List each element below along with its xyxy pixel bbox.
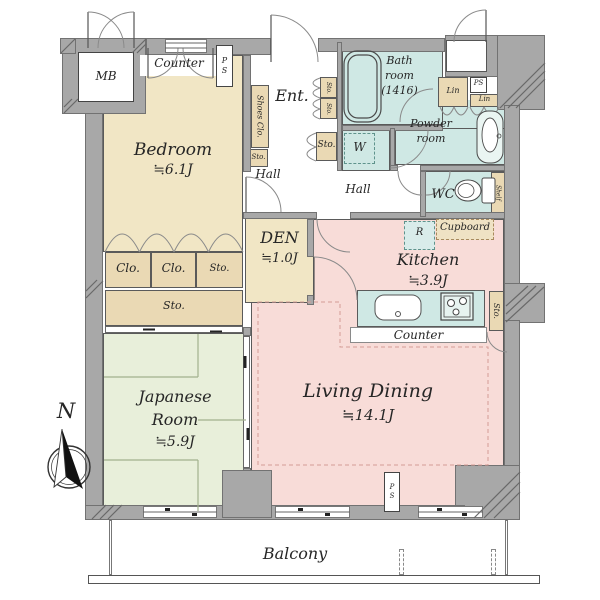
wall: [243, 212, 317, 219]
shoes-closet-label: Shoes Clo.: [251, 86, 269, 146]
lin-left-label: Lin: [438, 87, 468, 95]
clo-left-label: Clo.: [105, 262, 151, 275]
bath-label-2: room: [362, 70, 437, 82]
balcony-post: [399, 549, 404, 575]
den-label: DEN: [245, 230, 314, 247]
sto-ent-lower-label: Sto.: [320, 100, 337, 118]
kitchen-counter-area: [357, 290, 485, 327]
entry-door-opening: [446, 40, 487, 72]
bedroom-size: ≒6.1J: [103, 163, 243, 178]
entrance-label: Ent.: [266, 88, 318, 105]
living-dining-label: Living Dining: [258, 382, 478, 402]
japanese-room-label-2: Room: [103, 412, 247, 429]
washer-label: W: [344, 141, 375, 154]
japanese-room-size: ≒5.9J: [103, 435, 247, 450]
den-size: ≒1.0J: [245, 252, 314, 266]
hall-upper-label: Hall: [246, 168, 290, 181]
balcony-post: [491, 549, 496, 575]
wc-label: WC: [422, 188, 464, 202]
bath-label-1: Bath: [362, 55, 437, 67]
powder-room-label-1: Powder: [396, 118, 466, 130]
cupboard-label: Cupboard: [436, 223, 494, 234]
wall: [307, 295, 314, 305]
sto-ent-upper-label: Sto.: [320, 79, 337, 97]
wall: [60, 38, 76, 54]
japanese-room-label-1: Japanese: [103, 389, 247, 406]
pillar: [222, 470, 272, 518]
window-living-right: [418, 506, 483, 518]
balcony-rail-left: [109, 520, 112, 575]
wall: [504, 320, 520, 470]
wall: [337, 42, 342, 171]
sto-ent-hall-label: Sto.: [316, 141, 337, 150]
clo-right-label: Clo.: [151, 262, 196, 275]
window-living-left: [275, 506, 350, 518]
sto-shoes-label: Sto.: [249, 154, 268, 161]
lin-right-label: Lin: [470, 96, 499, 103]
bath-label-3: (1416): [362, 85, 437, 97]
north-label: N: [44, 400, 88, 422]
ps-upper-right-label: PS: [470, 80, 487, 87]
fridge-label: R: [404, 228, 435, 239]
wall: [350, 212, 505, 219]
compass: [48, 429, 90, 489]
window-counter: [165, 39, 207, 53]
kitchen-size: ≒3.9J: [388, 274, 468, 289]
wall: [390, 165, 398, 171]
balcony-rail-right: [505, 520, 508, 575]
balcony-rail-bottom: [88, 575, 540, 584]
window-japanese: [143, 506, 217, 518]
balcony-label: Balcony: [235, 546, 355, 563]
wall: [420, 165, 505, 171]
ps-bottom-label: PS: [384, 477, 400, 507]
wall: [243, 327, 251, 336]
wall: [504, 105, 520, 288]
meter-box-label: MB: [78, 70, 134, 83]
bedroom-label: Bedroom: [103, 142, 243, 160]
counter-top-label: Counter: [140, 57, 218, 70]
hall-lower-label: Hall: [336, 183, 380, 196]
sto-kitchen-label: Sto.: [489, 293, 504, 329]
compass-needle: [62, 429, 83, 489]
ps-top-label: PS: [216, 47, 233, 85]
counter-kitchen-label: Counter: [350, 329, 487, 342]
wall: [504, 283, 545, 323]
jp-sto-slide-track: [105, 326, 243, 333]
powder-room-label-2: room: [396, 133, 466, 145]
living-dining-size: ≒14.1J: [258, 408, 478, 424]
shelf-label: Shelf: [491, 174, 505, 212]
sto-row-label: Sto.: [196, 264, 243, 275]
kitchen-label: Kitchen: [388, 252, 468, 269]
wall: [497, 35, 545, 110]
sto-big-label: Sto.: [105, 300, 243, 312]
floor-plan: Bedroom ≒6.1J Japanese Room ≒5.9J Living…: [0, 0, 600, 600]
